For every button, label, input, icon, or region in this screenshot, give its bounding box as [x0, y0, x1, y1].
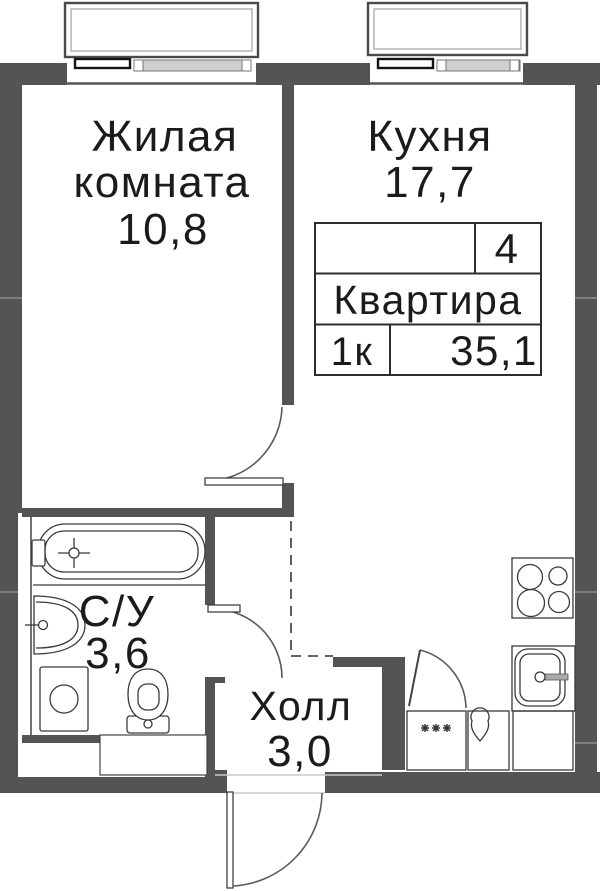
apartment-label: Квартира — [333, 277, 522, 323]
window-glass-bar — [437, 60, 520, 71]
washing-machine-icon — [40, 667, 88, 731]
kitchen-sink-icon — [512, 646, 575, 711]
bathtub-icon — [32, 524, 206, 585]
window-casement — [378, 59, 433, 68]
door-leaf — [409, 650, 420, 706]
bathroom-door — [208, 605, 282, 678]
kitchen-label: Кухня — [367, 112, 492, 161]
bathtub-drain — [69, 548, 79, 558]
living-kitchen-partition — [282, 85, 294, 405]
toilet-icon — [127, 669, 169, 733]
rooms-count: 1к — [331, 330, 374, 374]
floor-plan-canvas: 4 Квартира 1к 35,1 Жилая комната 10,8 Ку… — [0, 0, 600, 891]
water-heater-icon — [471, 708, 489, 741]
top-wall-right — [523, 63, 600, 85]
window-end-cap — [242, 60, 251, 71]
entrance-door-icon — [227, 792, 233, 888]
stove-burner — [518, 565, 543, 590]
hall-kitchen-wall-horizontal — [333, 657, 405, 667]
bathroom-area: 3,6 — [85, 629, 151, 678]
bathtub-inner — [45, 531, 198, 572]
door-swing-icon — [207, 407, 282, 481]
door-leaf — [208, 605, 240, 612]
washbasin-icon — [25, 596, 85, 654]
living-room-label2: комната — [74, 158, 251, 207]
sink-faucet-knob — [535, 672, 545, 682]
door-leaf — [205, 478, 283, 485]
toilet-button — [144, 720, 152, 728]
bathroom-bottom-band — [22, 735, 100, 743]
top-wall-middle — [256, 63, 370, 85]
living-room-window — [65, 3, 258, 84]
stove-burner — [549, 567, 567, 585]
apartment-number: 4 — [495, 225, 520, 272]
window-end-cap — [510, 60, 519, 71]
top-wall-left — [0, 63, 67, 85]
door-swing-icon — [420, 650, 466, 708]
stove-burner — [549, 592, 570, 613]
bathroom-right-wall-upper — [205, 517, 215, 605]
left-wall-upper — [0, 85, 22, 513]
kitchen-window — [368, 3, 527, 84]
kitchen-nook-door — [409, 650, 466, 708]
washbasin-faucet-knob — [39, 621, 48, 630]
bathtub-spout — [32, 540, 45, 566]
bathroom-door-jamb-stub — [215, 677, 225, 683]
door-swing-icon — [233, 793, 322, 886]
appliance-box-icon — [513, 711, 573, 770]
stove-burner — [518, 590, 545, 617]
window-end-cap — [134, 60, 143, 71]
living-bottom-wall — [22, 508, 294, 517]
total-area: 35,1 — [450, 327, 538, 374]
stove-icon — [512, 558, 573, 618]
window-icon — [368, 3, 527, 55]
appliance-box-icon — [407, 711, 466, 770]
sink-faucet-bar — [545, 674, 568, 680]
window-icon — [65, 3, 258, 57]
duct-shaft — [100, 735, 207, 775]
living-room-door — [205, 407, 283, 485]
window-end-cap — [437, 60, 446, 71]
washing-machine-drum — [50, 685, 78, 713]
window-casement — [75, 59, 130, 68]
open-boundary-dashed — [291, 521, 333, 656]
right-wall — [575, 85, 597, 772]
hall-label: Холл — [250, 683, 353, 729]
bottom-wall-left — [0, 777, 225, 793]
kitchen-area: 17,7 — [384, 158, 476, 207]
living-room-area: 10,8 — [117, 205, 209, 254]
left-wall-lower — [0, 513, 18, 777]
floor-plan: 4 Квартира 1к 35,1 Жилая комната 10,8 Ку… — [0, 0, 600, 891]
hall-area: 3,0 — [267, 727, 333, 776]
door-swing-icon — [213, 609, 282, 678]
info-table: 4 Квартира 1к 35,1 — [315, 223, 541, 375]
asterisk-marks-icon — [421, 724, 451, 732]
appliance-row — [407, 708, 573, 770]
entrance-door — [227, 792, 322, 888]
living-room-label: Жилая — [92, 112, 239, 161]
window-glass-bar — [134, 60, 251, 71]
hall-kitchen-wall-vertical — [382, 667, 405, 770]
